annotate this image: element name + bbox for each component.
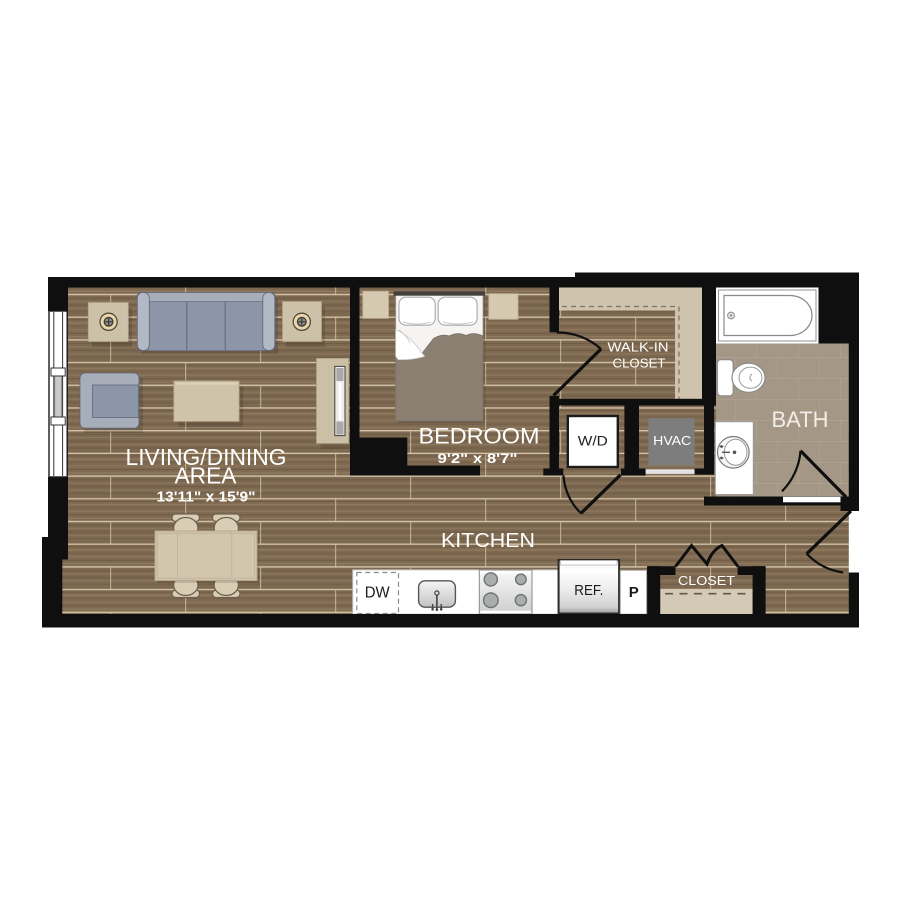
svg-text:W/D: W/D (578, 433, 608, 449)
svg-text:9'2" x 8'7": 9'2" x 8'7" (438, 450, 518, 466)
svg-text:BEDROOM: BEDROOM (419, 424, 540, 449)
svg-text:13'11" x 15'9": 13'11" x 15'9" (157, 490, 256, 506)
svg-text:WALK-IN: WALK-IN (608, 341, 669, 355)
svg-text:BATH: BATH (772, 407, 829, 432)
svg-text:DW: DW (365, 585, 390, 602)
svg-text:CLOSET: CLOSET (613, 356, 666, 370)
svg-text:REF.: REF. (574, 582, 603, 599)
svg-text:P: P (629, 584, 639, 601)
svg-text:HVAC: HVAC (653, 434, 691, 448)
svg-text:AREA: AREA (175, 463, 238, 489)
svg-text:CLOSET: CLOSET (678, 573, 735, 588)
svg-text:KITCHEN: KITCHEN (441, 529, 535, 552)
